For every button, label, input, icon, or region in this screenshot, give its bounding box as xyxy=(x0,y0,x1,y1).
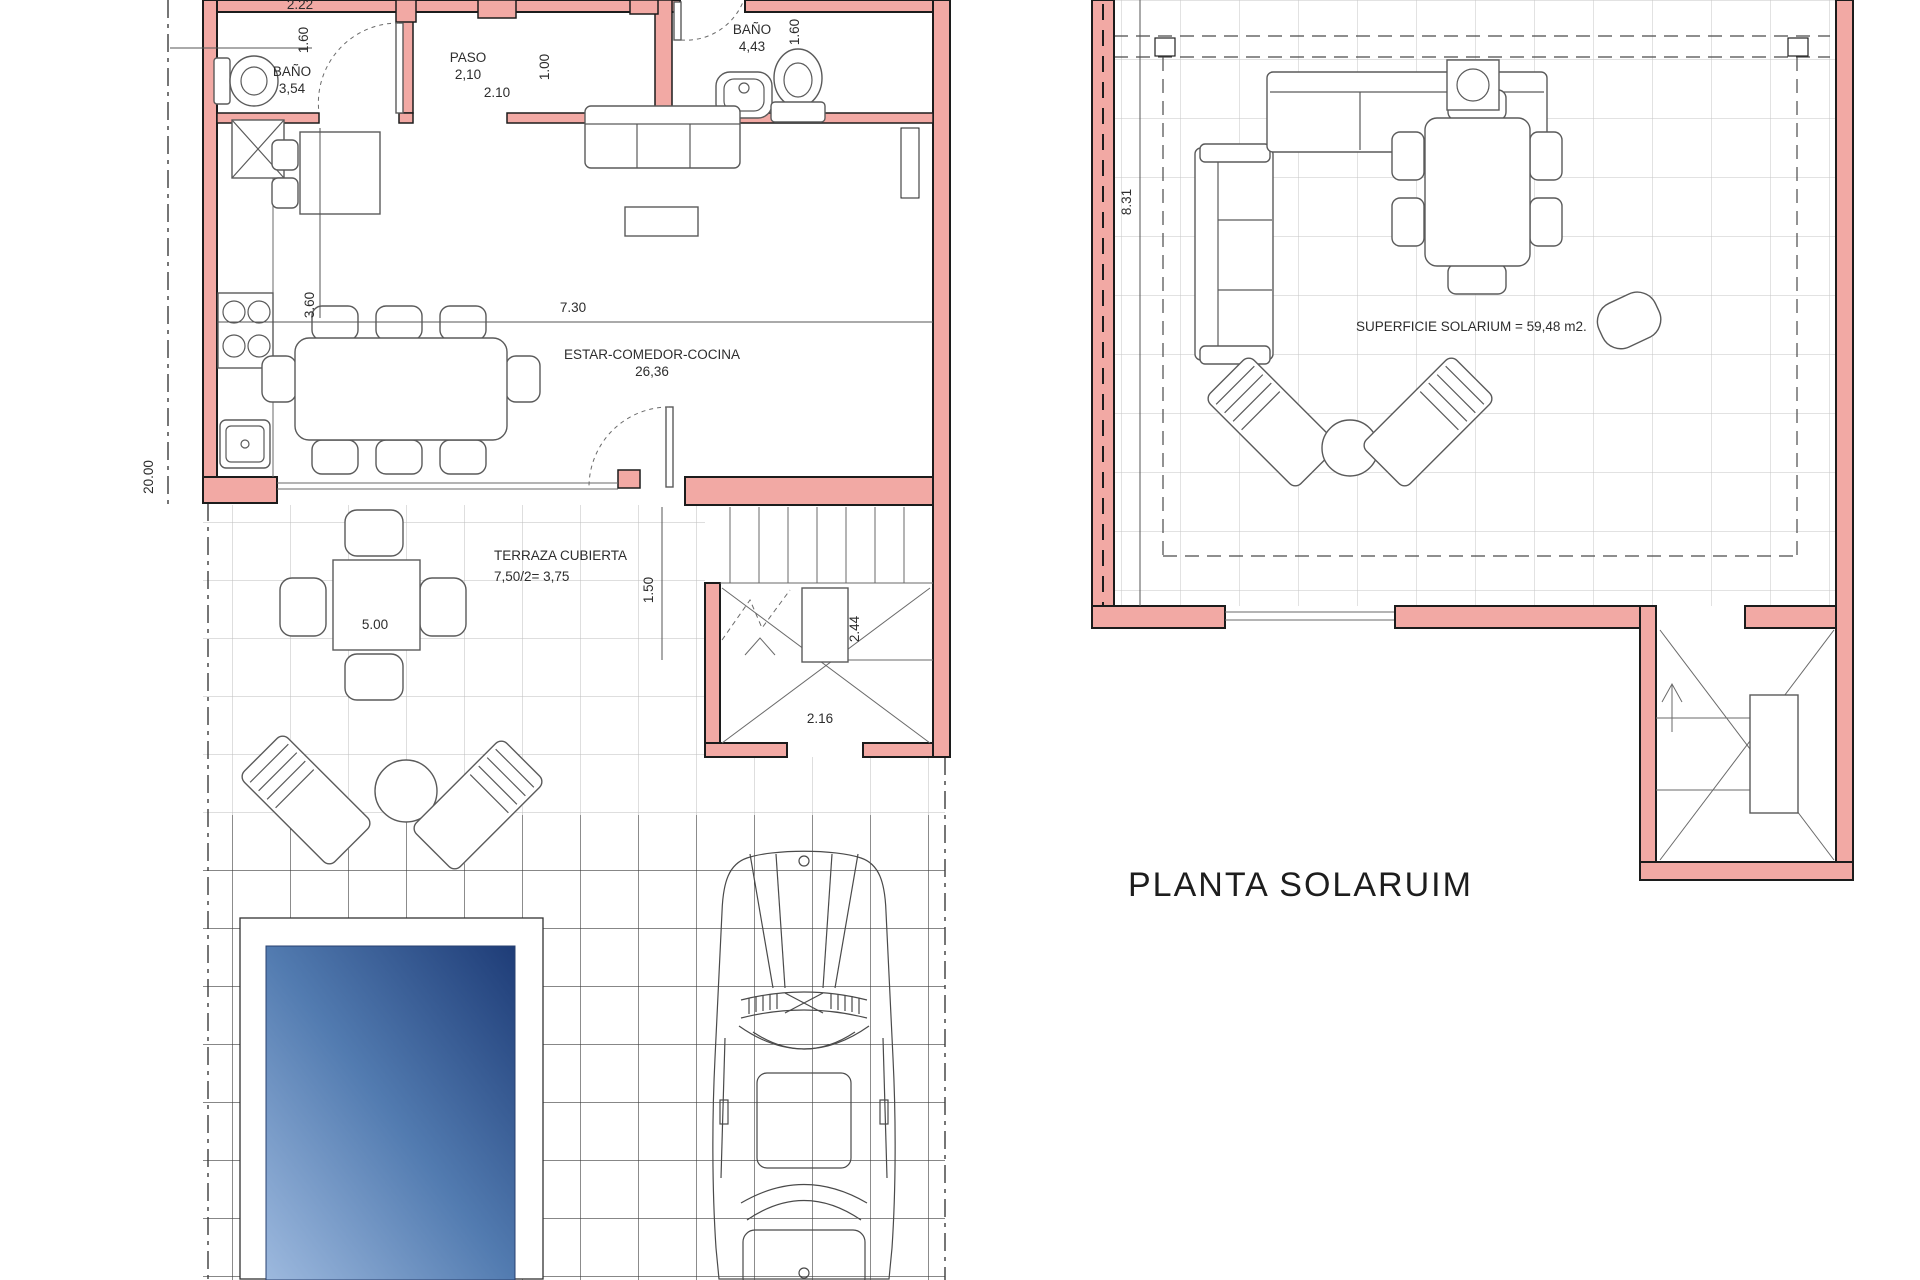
solarium-sofa-vertical-icon xyxy=(1195,144,1273,364)
toilet-icon xyxy=(214,56,278,106)
paso-label: PASO xyxy=(450,50,487,65)
stairs-icon xyxy=(720,507,933,743)
terraza-label: TERRAZA CUBIERTA xyxy=(494,548,627,563)
dim-stair-width: 2.16 xyxy=(807,711,833,726)
dim-terrace-clear: 1.50 xyxy=(641,577,656,603)
dim-bano2-depth: 1.60 xyxy=(787,19,802,45)
sofa-icon xyxy=(585,106,740,168)
dim-top-width: 2.22 xyxy=(287,0,313,12)
dining-table-icon xyxy=(262,306,540,474)
solarium-plan: 8.31 SUPERFICIE SOLARIUM = 59,48 m2. PLA… xyxy=(1092,0,1853,904)
floorplan-page: 2.22 1.60 BAÑO 3,54 PASO 2,10 2.10 1.00 … xyxy=(0,0,1920,1280)
bano1-area: 3,54 xyxy=(279,81,306,96)
terraza-area: 7,50/2= 3,75 xyxy=(494,569,569,584)
solarium-washbasin-icon xyxy=(1447,60,1499,110)
dim-kitchen-depth: 3.60 xyxy=(302,292,317,318)
solarium-surface-label: SUPERFICIE SOLARIUM = 59,48 m2. xyxy=(1356,319,1587,334)
bano2-area: 4,43 xyxy=(739,39,765,54)
coffee-table-icon xyxy=(625,207,698,236)
dim-living-width: 7.30 xyxy=(560,300,586,315)
dim-bano1-depth: 1.60 xyxy=(296,27,311,53)
ground-floor-plan: 2.22 1.60 BAÑO 3,54 PASO 2,10 2.10 1.00 … xyxy=(141,0,1140,1280)
estar-area: 26,36 xyxy=(635,364,669,379)
toilet-icon-2 xyxy=(771,49,825,122)
bano1-label: BAÑO xyxy=(273,64,311,79)
paso-area: 2,10 xyxy=(455,67,481,82)
solarium-stairs-icon xyxy=(1656,630,1834,860)
dim-paso-width: 2.10 xyxy=(484,85,510,100)
bano2-label: BAÑO xyxy=(733,22,771,37)
dim-terrace-table: 5.00 xyxy=(362,617,388,632)
dim-solarium-depth: 8.31 xyxy=(1119,189,1134,215)
stove-icon xyxy=(218,293,273,368)
pool xyxy=(240,918,543,1280)
floorplan-drawing: 2.22 1.60 BAÑO 3,54 PASO 2,10 2.10 1.00 … xyxy=(0,0,1920,1280)
dim-paso-clear: 1.00 xyxy=(537,54,552,80)
kitchen-sink-icon xyxy=(220,420,270,468)
estar-label: ESTAR-COMEDOR-COCINA xyxy=(564,347,740,362)
dim-plot-depth: 20.00 xyxy=(141,460,156,494)
island-icon xyxy=(272,132,380,214)
solarium-title: PLANTA SOLARUIM xyxy=(1128,866,1473,904)
dim-stair-depth: 2.44 xyxy=(847,615,862,642)
